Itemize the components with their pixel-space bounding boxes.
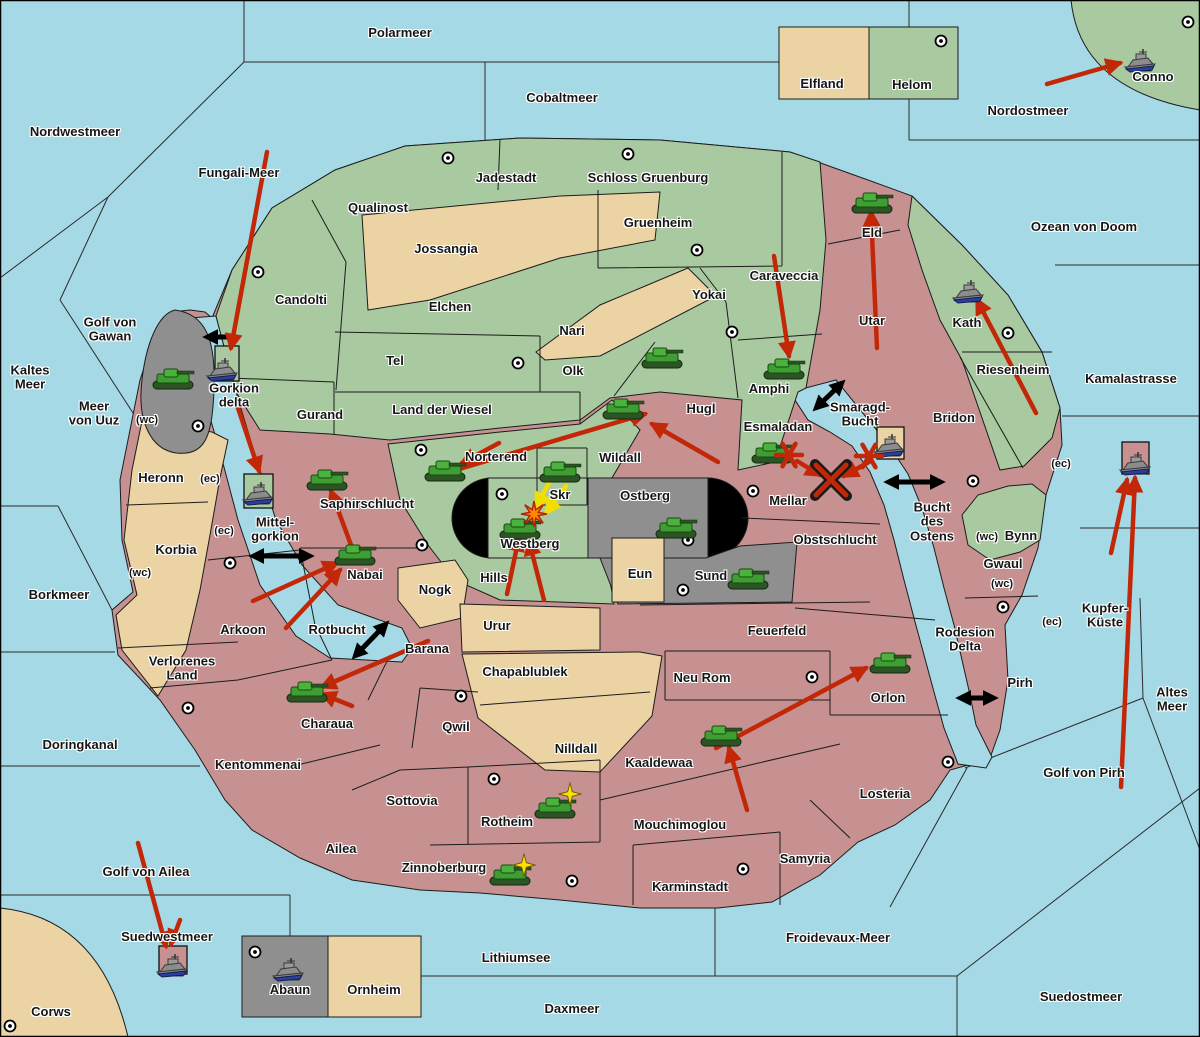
supply-center-candolti [253,267,264,278]
supply-center-neu-rom [807,672,818,683]
supply-center-amphi [727,327,738,338]
supply-center-losteria [943,757,954,768]
supply-center-norterend [416,445,427,456]
region-elfland[interactable] [779,27,869,99]
supply-center-sund [678,585,689,596]
supply-center-zinnoberburg [567,876,578,887]
supply-center-helom [936,36,947,47]
supply-center-schloss-gruenburg [623,149,634,160]
supply-center-conno [1183,17,1194,28]
supply-center-karminstadt [738,864,749,875]
supply-center-westberg [497,489,508,500]
supply-center-jadestadt [443,153,454,164]
explosion-marker-westberg [521,501,547,527]
supply-center-abaun [250,947,261,958]
supply-center-kentommenai [183,703,194,714]
supply-center-pirh [998,602,1009,613]
supply-center-mellar [748,486,759,497]
supply-center-kath [1003,328,1014,339]
supply-center-tel [513,358,524,369]
region-eun[interactable] [612,538,664,602]
supply-center-corws [5,1021,16,1032]
region-ornheim[interactable] [328,936,421,1017]
supply-center-arkoon [225,558,236,569]
supply-center-bridon [968,476,979,487]
supply-center-rotheim [489,774,500,785]
supply-center-gruenheim [692,245,703,256]
supply-center-gawar [193,421,204,432]
region-urur[interactable] [460,604,600,652]
supply-center-saphirschlucht [417,540,428,551]
supply-center-qwil [456,691,467,702]
game-map: NordwestmeerPolarmeerCobaltmeerFungali-M… [0,0,1200,1037]
